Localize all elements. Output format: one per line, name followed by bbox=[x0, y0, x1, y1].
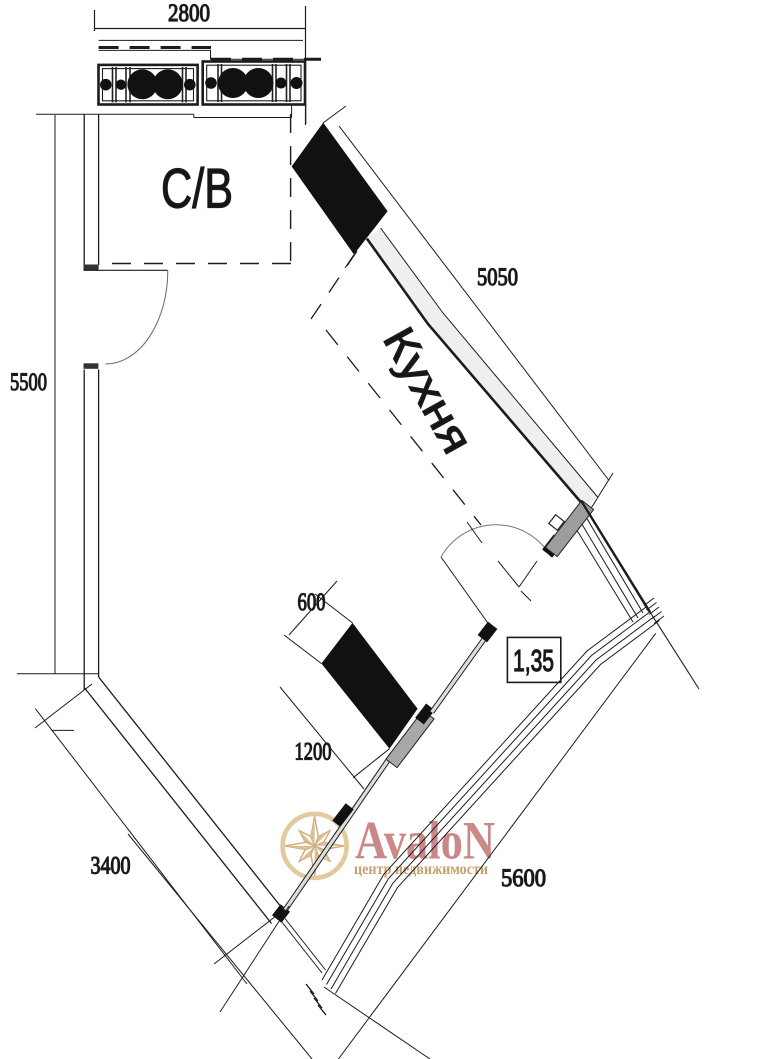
svg-text:центр недвижимости: центр недвижимости bbox=[354, 861, 488, 878]
svg-text:5050: 5050 bbox=[477, 264, 518, 291]
svg-text:5600: 5600 bbox=[501, 865, 546, 892]
svg-text:2800: 2800 bbox=[168, 0, 210, 27]
svg-text:600: 600 bbox=[298, 589, 326, 616]
svg-text:5500: 5500 bbox=[10, 369, 47, 396]
svg-text:С/В: С/В bbox=[161, 157, 233, 220]
svg-text:1,35: 1,35 bbox=[513, 643, 554, 678]
svg-text:1200: 1200 bbox=[295, 739, 332, 766]
svg-text:3400: 3400 bbox=[91, 853, 131, 880]
